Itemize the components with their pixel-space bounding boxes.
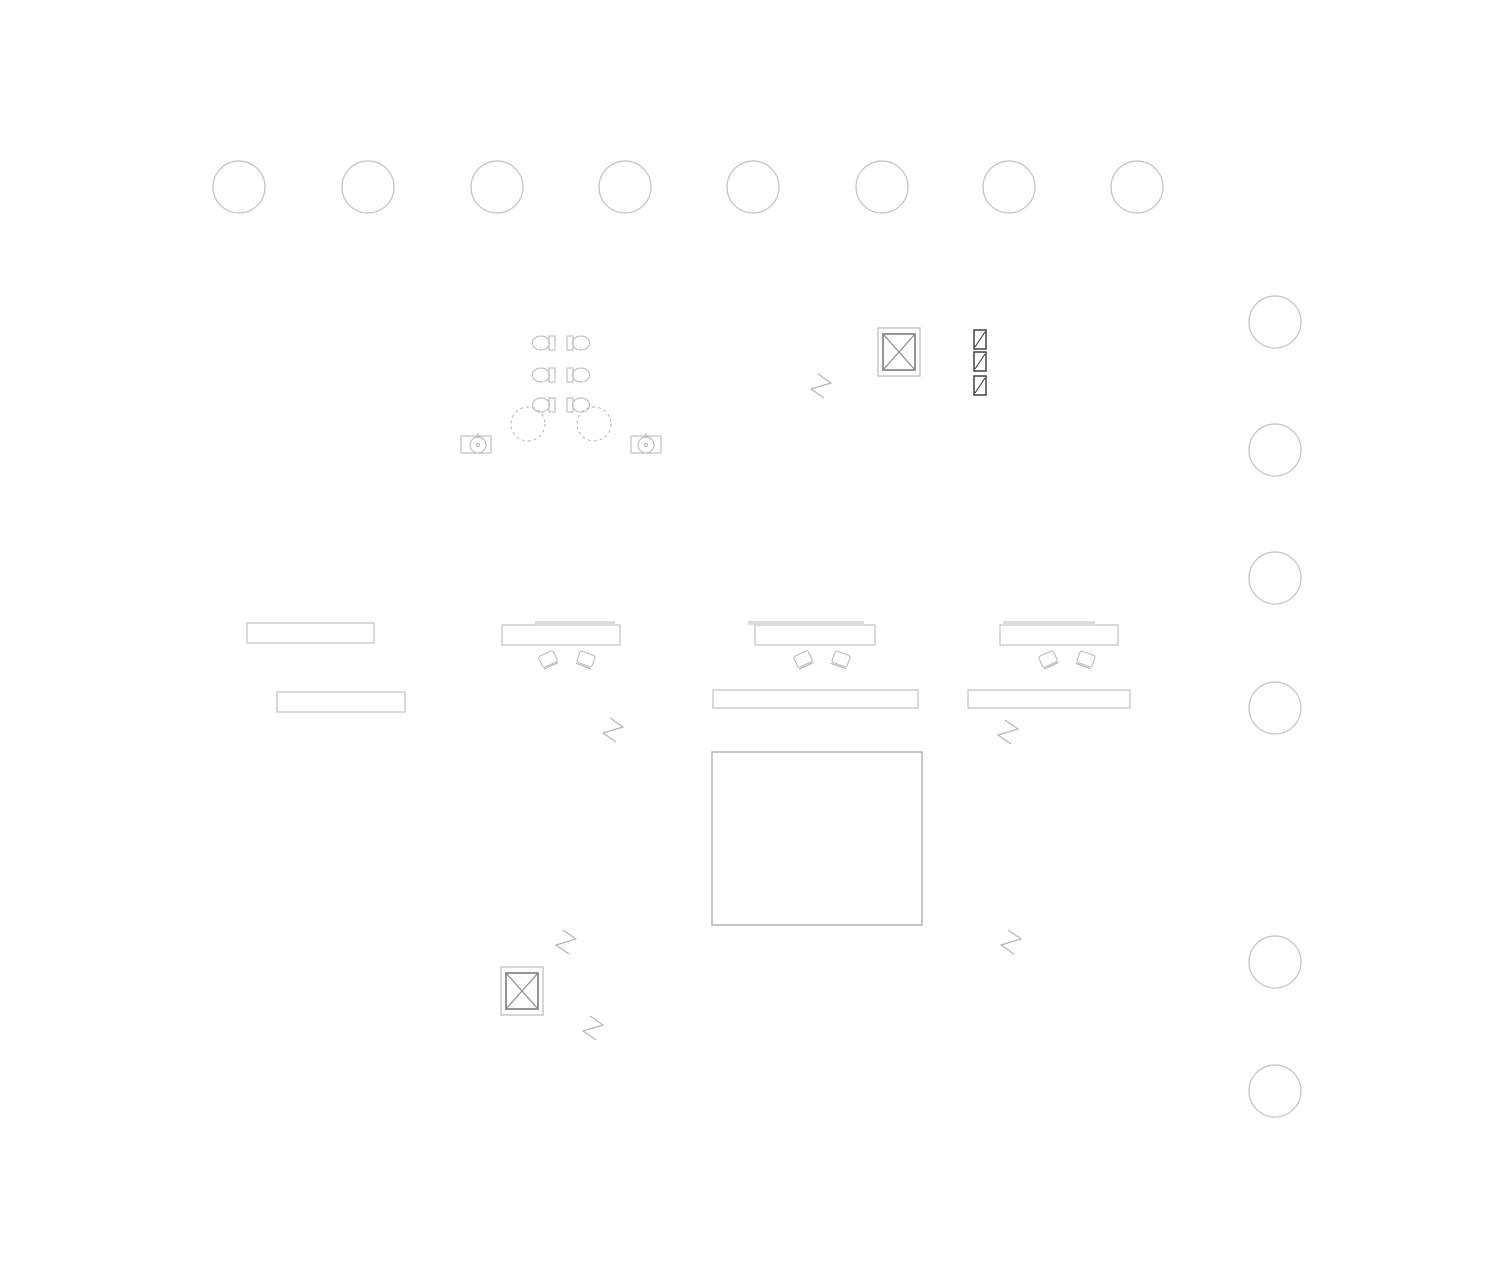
louver-icon [974, 376, 986, 395]
grid-bubble-row-4 [1249, 682, 1301, 734]
grid-bubble-col-7 [983, 161, 1035, 213]
grid-bubble-row-6 [1249, 1065, 1301, 1117]
grid-bubble-row-5 [1249, 936, 1301, 988]
floor-plan-sheet [0, 0, 1500, 1281]
grid-bubble-col-5 [727, 161, 779, 213]
grid-bubble-col-6 [856, 161, 908, 213]
grid-bubble-col-2 [342, 161, 394, 213]
grid-bubble-col-4 [599, 161, 651, 213]
grid-bubble-col-8 [1111, 161, 1163, 213]
floor-plan-drawing [0, 0, 1500, 1281]
grid-bubble-row-1 [1249, 296, 1301, 348]
louver-icon [974, 352, 986, 371]
grid-bubble-row-3 [1249, 552, 1301, 604]
grid-bubble-col-3 [471, 161, 523, 213]
window [748, 621, 864, 625]
window [535, 621, 615, 625]
grid-bubble-row-2 [1249, 424, 1301, 476]
louver-icon [974, 330, 986, 349]
grid-bubble-col-1 [213, 161, 265, 213]
window [1003, 621, 1095, 625]
